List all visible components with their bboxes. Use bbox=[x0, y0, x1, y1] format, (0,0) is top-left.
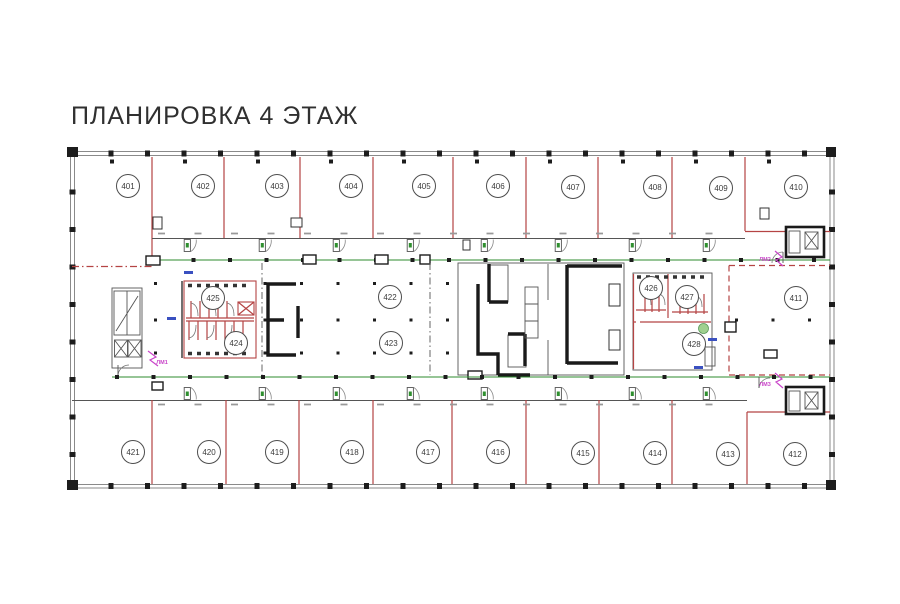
svg-text:423: 423 bbox=[384, 339, 398, 348]
svg-text:417: 417 bbox=[421, 448, 435, 457]
room-bubble-420: 420 bbox=[198, 441, 221, 464]
room-bubble-421: 421 bbox=[122, 441, 145, 464]
svg-text:403: 403 bbox=[270, 182, 284, 191]
room-bubble-428: 428 bbox=[683, 333, 706, 356]
room-bubble-418: 418 bbox=[341, 441, 364, 464]
core-wall-bracket bbox=[268, 284, 298, 355]
room-bubble-414: 414 bbox=[644, 442, 667, 465]
svg-text:420: 420 bbox=[202, 448, 216, 457]
svg-text:421: 421 bbox=[126, 448, 140, 457]
room-bubble-415: 415 bbox=[572, 442, 595, 465]
room-bubble-410: 410 bbox=[785, 176, 808, 199]
room-bubble-426: 426 bbox=[640, 277, 663, 300]
svg-text:414: 414 bbox=[648, 449, 662, 458]
svg-text:406: 406 bbox=[491, 182, 505, 191]
floorplan-page: ПЛАНИРОВКА 4 ЭТАЖ bbox=[0, 0, 900, 604]
top-room-doors bbox=[184, 240, 715, 252]
room-bubble-403: 403 bbox=[266, 175, 289, 198]
svg-text:409: 409 bbox=[714, 184, 728, 193]
svg-text:426: 426 bbox=[644, 284, 658, 293]
svg-text:418: 418 bbox=[345, 448, 359, 457]
central-core bbox=[458, 263, 624, 379]
svg-text:404: 404 bbox=[344, 182, 358, 191]
room-bubble-419: 419 bbox=[266, 441, 289, 464]
stair-label: ЛМ2 bbox=[759, 257, 771, 263]
svg-text:425: 425 bbox=[206, 294, 220, 303]
bottom-room-doors bbox=[184, 388, 715, 400]
svg-text:416: 416 bbox=[491, 448, 505, 457]
service-ladder bbox=[705, 347, 715, 366]
svg-text:419: 419 bbox=[270, 448, 284, 457]
room-411-zone bbox=[725, 266, 830, 376]
svg-text:424: 424 bbox=[229, 339, 243, 348]
room-bubble-408: 408 bbox=[644, 176, 667, 199]
stair-label: ЛМ3 bbox=[759, 382, 771, 388]
floorplan-drawing: 4014024034044054064074084094104114124134… bbox=[0, 0, 900, 604]
room-bubble-416: 416 bbox=[487, 441, 510, 464]
svg-text:407: 407 bbox=[566, 183, 580, 192]
svg-text:405: 405 bbox=[417, 182, 431, 191]
svg-text:427: 427 bbox=[680, 293, 694, 302]
room-bubble-425: 425 bbox=[202, 287, 225, 310]
room-bubble-417: 417 bbox=[417, 441, 440, 464]
svg-text:422: 422 bbox=[383, 293, 397, 302]
svg-text:415: 415 bbox=[576, 449, 590, 458]
room-bubble-401: 401 bbox=[117, 175, 140, 198]
room-bubble-427: 427 bbox=[676, 286, 699, 309]
round-fixture bbox=[699, 324, 709, 334]
stair-label: ЛМ1 bbox=[156, 360, 168, 366]
svg-text:401: 401 bbox=[121, 182, 135, 191]
room-bubble-407: 407 bbox=[562, 176, 585, 199]
room-bubble-422: 422 bbox=[379, 286, 402, 309]
room-bubble-409: 409 bbox=[710, 177, 733, 200]
room-bubble-413: 413 bbox=[717, 443, 740, 466]
svg-text:408: 408 bbox=[648, 183, 662, 192]
room-bubble-402: 402 bbox=[192, 175, 215, 198]
room-bubble-405: 405 bbox=[413, 175, 436, 198]
svg-text:402: 402 bbox=[196, 182, 210, 191]
room-bubble-424: 424 bbox=[225, 332, 248, 355]
bottom-rooms bbox=[72, 400, 830, 484]
top-corridor bbox=[146, 255, 830, 265]
room-bubble-411: 411 bbox=[785, 287, 808, 310]
room-bubble-406: 406 bbox=[487, 175, 510, 198]
svg-text:412: 412 bbox=[788, 450, 802, 459]
svg-text:428: 428 bbox=[687, 340, 701, 349]
room-bubble-412: 412 bbox=[784, 443, 807, 466]
svg-text:411: 411 bbox=[790, 294, 803, 303]
room-bubble-423: 423 bbox=[380, 332, 403, 355]
svg-text:410: 410 bbox=[789, 183, 803, 192]
svg-text:413: 413 bbox=[721, 450, 735, 459]
left-stair-core bbox=[112, 288, 142, 376]
room-bubble-404: 404 bbox=[340, 175, 363, 198]
